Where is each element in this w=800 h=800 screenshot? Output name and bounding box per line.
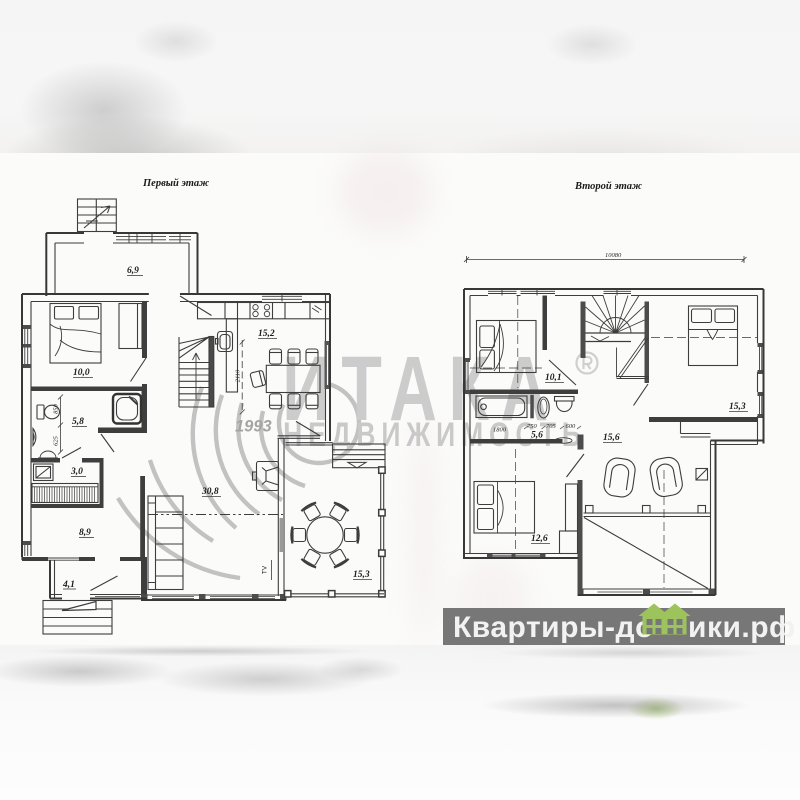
svg-text:850: 850 (53, 403, 60, 414)
svg-text:625: 625 (53, 435, 60, 446)
svg-text:15,3: 15,3 (729, 402, 746, 412)
svg-text:15,3: 15,3 (353, 570, 370, 580)
svg-text:12,6: 12,6 (531, 534, 548, 544)
svg-text:750: 750 (527, 423, 538, 430)
svg-text:705: 705 (546, 423, 557, 430)
svg-text:3,0: 3,0 (70, 467, 83, 477)
svg-text:ики.рф: ики.рф (688, 611, 796, 644)
svg-text:Второй этаж: Второй этаж (574, 181, 642, 192)
svg-text:2110: 2110 (235, 369, 242, 382)
svg-text:15,2: 15,2 (258, 329, 275, 339)
svg-text:6,9: 6,9 (127, 266, 139, 276)
svg-text:10,0: 10,0 (73, 368, 90, 378)
svg-text:10080: 10080 (605, 252, 622, 259)
svg-text:30,8: 30,8 (201, 487, 219, 497)
svg-text:1993: 1993 (235, 418, 272, 436)
svg-text:600: 600 (566, 423, 577, 430)
svg-text:15,6: 15,6 (603, 433, 620, 443)
svg-text:8,9: 8,9 (79, 528, 91, 538)
svg-text:Первый этаж: Первый этаж (142, 178, 209, 189)
svg-text:TV: TV (262, 565, 269, 574)
svg-text:1800: 1800 (493, 427, 507, 434)
svg-text:4,1: 4,1 (62, 580, 75, 590)
svg-text:5,8: 5,8 (72, 417, 84, 427)
svg-text:Квартиры-до: Квартиры-до (453, 611, 654, 644)
svg-text:10,1: 10,1 (545, 373, 562, 383)
